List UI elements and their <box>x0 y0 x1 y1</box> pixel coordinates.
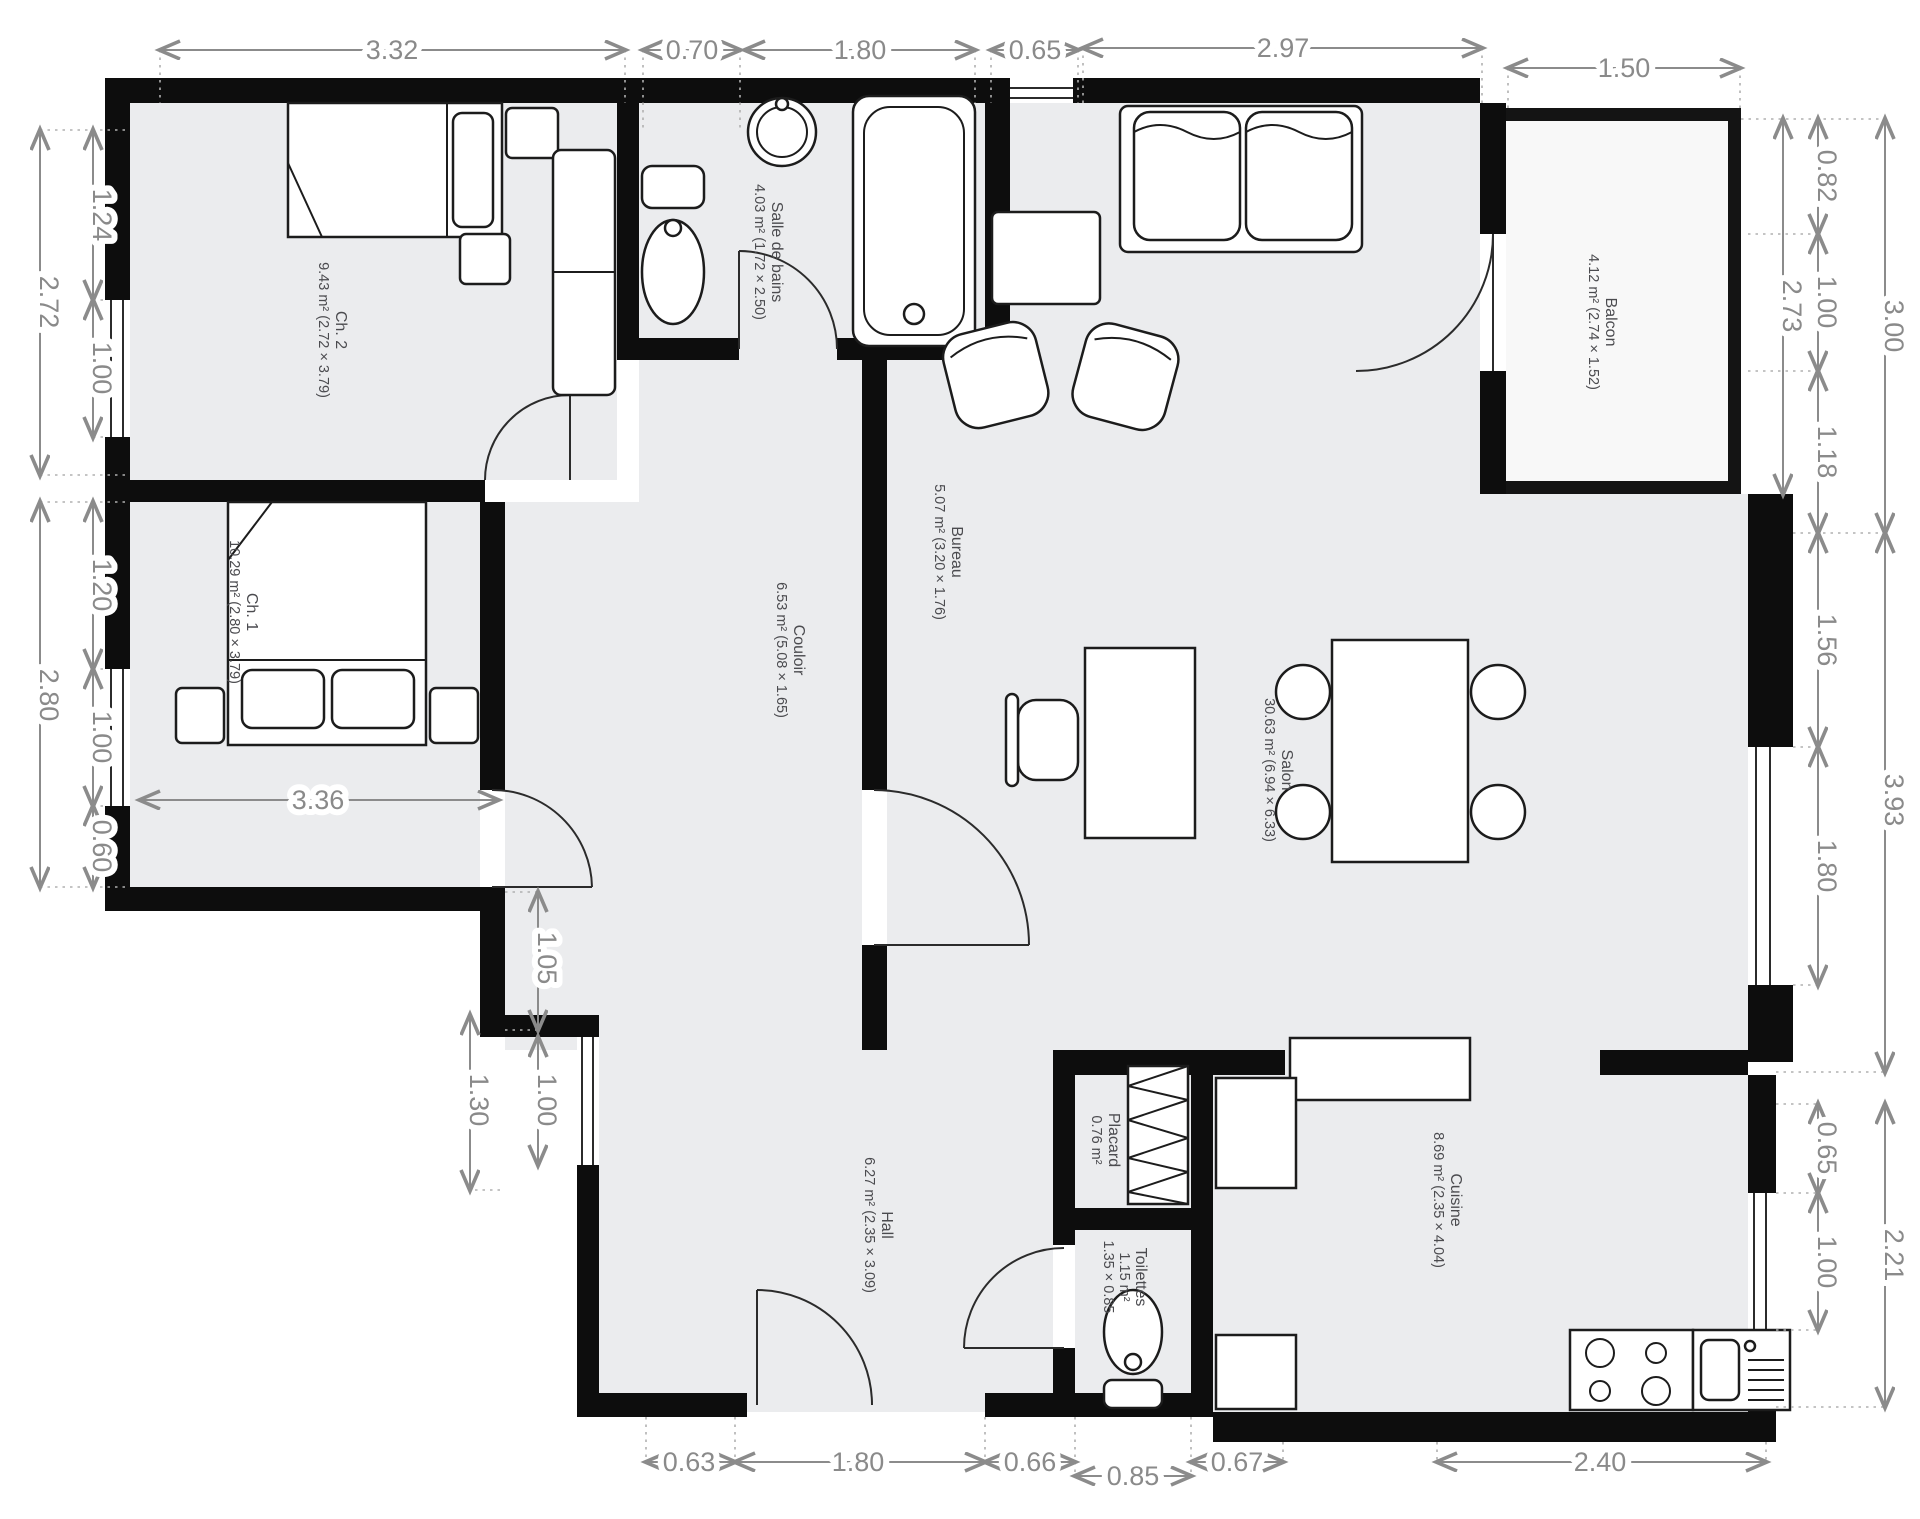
sofa <box>1120 106 1362 252</box>
svg-text:3.00: 3.00 <box>1879 300 1909 353</box>
svg-text:3.93: 3.93 <box>1879 774 1909 827</box>
svg-text:1.80: 1.80 <box>1812 840 1842 893</box>
dim-bottom: 0.63 <box>646 1447 735 1477</box>
floor-couloir-upper <box>639 360 862 502</box>
svg-text:1.50: 1.50 <box>1598 53 1651 83</box>
dim-right: 1.00 <box>1812 1193 1842 1330</box>
dim-right: 1.00 <box>1812 234 1842 371</box>
svg-text:1.00: 1.00 <box>87 711 117 764</box>
svg-text:2.40: 2.40 <box>1574 1447 1627 1477</box>
svg-text:0.60: 0.60 <box>87 820 117 873</box>
svg-text:0.66: 0.66 <box>1004 1447 1057 1477</box>
dim-right: 2.21 <box>1879 1104 1909 1407</box>
svg-text:1.80: 1.80 <box>832 1447 885 1477</box>
floor-salon-east <box>1480 494 1748 1050</box>
desk <box>1085 648 1195 838</box>
svg-text:2.73: 2.73 <box>1777 280 1807 333</box>
dim-bottom: 0.66 <box>985 1447 1075 1477</box>
svg-text:2.72: 2.72 <box>34 276 64 329</box>
svg-text:0.67: 0.67 <box>1211 1447 1264 1477</box>
kitchen-sink <box>1693 1330 1790 1410</box>
svg-text:1.80: 1.80 <box>834 35 887 65</box>
dim-inner: 1.00 <box>532 1037 562 1165</box>
chair <box>1471 665 1525 719</box>
dim-top: 1.80 <box>745 35 975 65</box>
chair <box>1276 785 1330 839</box>
svg-text:1.05: 1.05 <box>532 932 562 985</box>
dim-right: 1.56 <box>1812 533 1842 747</box>
fridge <box>1216 1335 1296 1409</box>
dim-left: 2.80 <box>34 502 64 887</box>
bed-single <box>288 103 502 237</box>
svg-text:2.80: 2.80 <box>34 669 64 722</box>
dim-right: 1.80 <box>1812 747 1842 985</box>
svg-text:2.21: 2.21 <box>1879 1229 1909 1282</box>
floor-hall <box>599 1050 1053 1412</box>
svg-text:1.18: 1.18 <box>1812 426 1842 479</box>
dim-bottom: 2.40 <box>1437 1447 1766 1477</box>
dim-right: 3.00 <box>1879 119 1909 533</box>
svg-text:3.36: 3.36 <box>292 785 345 815</box>
kitchen-unit <box>1216 1078 1296 1188</box>
svg-text:1.56: 1.56 <box>1812 614 1842 667</box>
stove <box>1570 1330 1693 1410</box>
floor-plan-page: 3.32 0.70 1.80 0.65 2.97 1.50 2.72 1.24 … <box>0 0 1920 1519</box>
nightstand <box>506 108 558 158</box>
dim-top: 2.97 <box>1083 33 1482 63</box>
sideboard <box>1290 1038 1470 1100</box>
bathtub <box>853 96 975 346</box>
side-table <box>460 234 510 284</box>
dim-bottom: 1.80 <box>735 1447 985 1477</box>
svg-text:1.00: 1.00 <box>87 342 117 395</box>
dim-right: 1.18 <box>1812 371 1842 533</box>
window-hall <box>577 1037 599 1165</box>
floor-plan-drawing: 3.32 0.70 1.80 0.65 2.97 1.50 2.72 1.24 … <box>0 0 1920 1519</box>
chair <box>1471 785 1525 839</box>
closet-rail <box>1128 1066 1188 1204</box>
dim-right: 3.93 <box>1879 533 1909 1072</box>
dim-right: 2.73 <box>1777 119 1807 494</box>
svg-text:1.00: 1.00 <box>1812 1236 1842 1289</box>
toilet <box>642 166 704 324</box>
coffee-table <box>992 212 1100 304</box>
dim-top: 3.32 <box>160 35 625 65</box>
window-cuisine <box>1748 1193 1776 1330</box>
sink <box>748 98 816 166</box>
desk-chair <box>1006 694 1078 786</box>
svg-text:0.65: 0.65 <box>1812 1122 1842 1175</box>
svg-text:1.00: 1.00 <box>1812 276 1842 329</box>
svg-text:1.30: 1.30 <box>464 1074 494 1127</box>
dim-top: 1.50 <box>1508 53 1740 83</box>
svg-text:1.24: 1.24 <box>87 189 117 242</box>
svg-text:1.00: 1.00 <box>532 1074 562 1127</box>
window-salon-facade <box>1010 83 1073 103</box>
dining-table <box>1332 640 1468 862</box>
svg-text:0.85: 0.85 <box>1107 1461 1160 1491</box>
svg-text:0.70: 0.70 <box>666 35 719 65</box>
dim-right: 0.82 <box>1812 119 1842 234</box>
chair <box>1276 665 1330 719</box>
svg-text:1.20: 1.20 <box>87 559 117 612</box>
svg-text:0.65: 0.65 <box>1009 35 1062 65</box>
svg-text:2.97: 2.97 <box>1257 33 1310 63</box>
dim-right: 0.65 <box>1812 1104 1842 1193</box>
dim-bottom: 0.67 <box>1191 1447 1283 1477</box>
nightstand <box>176 688 224 743</box>
dim-left: 2.72 <box>34 130 64 475</box>
wardrobe <box>553 150 615 395</box>
dim-inner: 1.30 <box>464 1015 494 1190</box>
dim-top: 0.70 <box>643 35 740 65</box>
svg-text:3.32: 3.32 <box>366 35 419 65</box>
dim-bottom: 0.85 <box>1075 1461 1191 1491</box>
svg-text:0.63: 0.63 <box>663 1447 716 1477</box>
dim-top: 0.65 <box>991 35 1078 65</box>
nightstand <box>430 688 478 743</box>
window-salon-east <box>1748 747 1793 985</box>
svg-text:0.82: 0.82 <box>1812 150 1842 203</box>
